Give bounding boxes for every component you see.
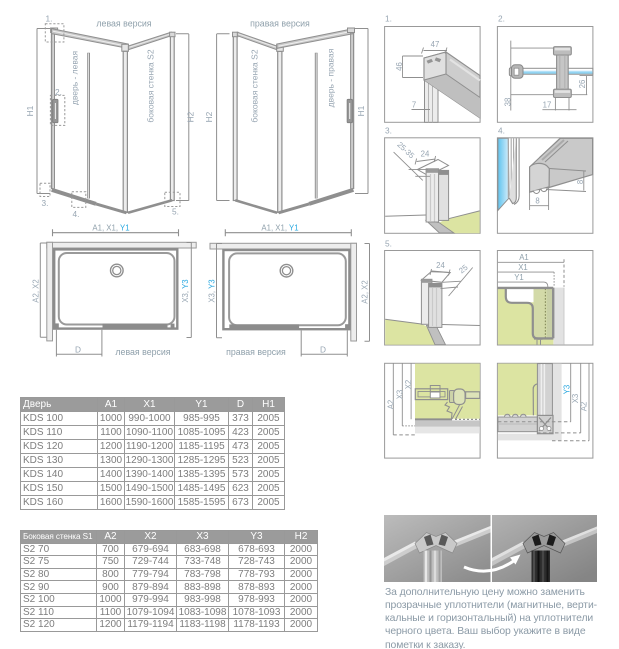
svg-text:D: D	[75, 345, 81, 355]
svg-text:A2, X2: A2, X2	[361, 280, 370, 303]
svg-text:24: 24	[421, 150, 430, 159]
svg-text:2.: 2.	[55, 87, 62, 97]
svg-text:правая версия: правая версия	[226, 347, 286, 357]
svg-text:2.: 2.	[498, 14, 505, 24]
svg-text:47: 47	[431, 40, 440, 49]
svg-text:Y3: Y3	[563, 385, 572, 395]
svg-text:8: 8	[576, 180, 585, 184]
svg-text:H1: H1	[25, 105, 35, 116]
svg-text:A2: A2	[386, 400, 395, 410]
svg-text:7: 7	[412, 101, 416, 110]
svg-text:4.: 4.	[73, 209, 80, 219]
svg-text:1.: 1.	[385, 14, 392, 24]
svg-text:8: 8	[535, 197, 539, 206]
svg-text:3.: 3.	[385, 126, 392, 136]
svg-text:5.: 5.	[172, 207, 179, 217]
svg-text:17: 17	[543, 101, 552, 110]
svg-text:26: 26	[578, 80, 587, 89]
svg-text:X3, Y3: X3, Y3	[208, 279, 217, 302]
svg-text:A1, X1, Y1: A1, X1, Y1	[92, 224, 129, 233]
svg-text:H2: H2	[204, 111, 214, 122]
svg-text:1.: 1.	[46, 14, 53, 24]
svg-text:X3, Y3: X3, Y3	[181, 279, 190, 302]
svg-text:A1: A1	[519, 253, 529, 262]
svg-text:H2: H2	[186, 111, 196, 122]
svg-text:X2: X2	[404, 380, 413, 390]
svg-text:46: 46	[395, 62, 404, 71]
svg-text:X3: X3	[395, 390, 404, 400]
svg-text:38: 38	[504, 98, 513, 107]
svg-text:4.: 4.	[498, 126, 505, 136]
svg-text:H1: H1	[356, 105, 366, 116]
svg-text:правая версия: правая версия	[250, 19, 310, 29]
svg-text:A1, X1, Y1: A1, X1, Y1	[261, 224, 298, 233]
svg-text:X1: X1	[518, 263, 528, 272]
svg-text:D: D	[320, 345, 326, 355]
svg-text:боковая стенка S2: боковая стенка S2	[250, 49, 260, 122]
svg-text:3.: 3.	[42, 198, 49, 208]
svg-text:дверь - левая: дверь - левая	[70, 50, 80, 105]
svg-text:дверь - правая: дверь - правая	[326, 48, 336, 107]
svg-text:левая версия: левая версия	[115, 347, 170, 357]
svg-text:5.: 5.	[385, 239, 392, 249]
svg-text:24: 24	[436, 261, 445, 270]
svg-text:25-35: 25-35	[395, 140, 416, 161]
svg-text:боковая стенка S2: боковая стенка S2	[146, 49, 156, 122]
svg-text:левая версия: левая версия	[96, 19, 151, 29]
svg-text:Y1: Y1	[514, 273, 524, 282]
svg-text:A2, X2: A2, X2	[32, 279, 41, 302]
svg-text:A2: A2	[579, 402, 588, 412]
